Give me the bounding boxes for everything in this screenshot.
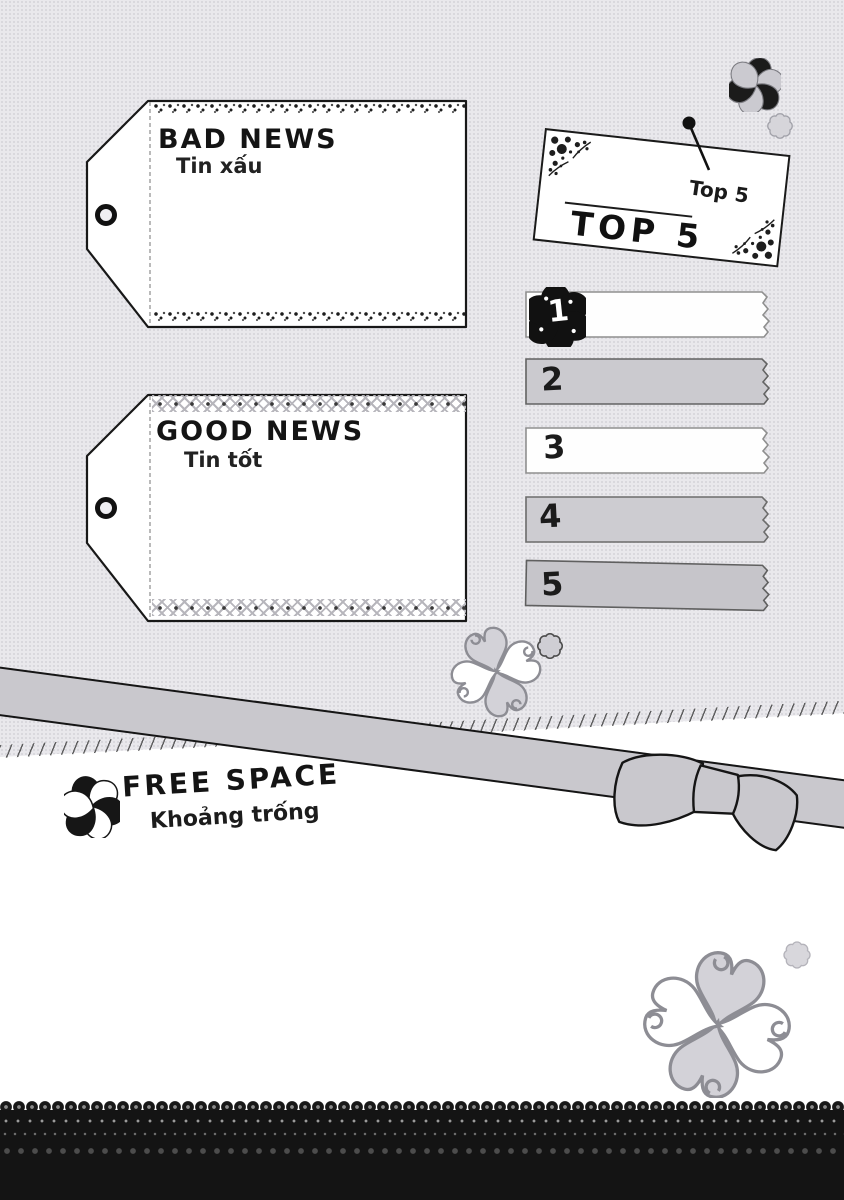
push-pin-icon	[680, 112, 724, 176]
planner-page: BAD NEWS Tin xấu GOOD NEWS Tin tốt Top 5…	[0, 0, 844, 1200]
good-news-subtitle: Tin tốt	[184, 448, 262, 472]
floral-border-top	[153, 102, 465, 115]
clover-icon	[729, 58, 781, 112]
top5-handwritten-note: Top 5	[688, 175, 751, 207]
corner-ornament-icon	[724, 207, 781, 264]
lace-border-top	[152, 395, 466, 412]
ribbon-bow-icon	[604, 736, 814, 861]
rank-number-2: 2	[540, 362, 564, 395]
tag-hole	[98, 500, 115, 517]
rank-number-3: 3	[542, 430, 566, 463]
heart-clover-icon	[642, 948, 792, 1098]
free-space-title: FREE SPACE	[121, 757, 341, 803]
tag-hole	[98, 207, 115, 224]
rank-number-5: 5	[540, 567, 564, 600]
heart-clover-icon	[450, 626, 542, 718]
free-space-subtitle: Khoảng trống	[149, 799, 320, 834]
free-space-clover-icon	[64, 776, 120, 838]
lace-trim-border	[0, 1101, 844, 1200]
rank-strip-4	[525, 496, 773, 543]
lace-border-bottom	[152, 599, 466, 616]
floral-border-bottom	[153, 310, 465, 323]
corner-ornament-icon	[542, 131, 599, 188]
rank-number-1: 1	[546, 296, 570, 328]
scalloped-flower-icon	[764, 110, 796, 142]
good-news-title: GOOD NEWS	[156, 416, 364, 447]
bad-news-subtitle: Tin xấu	[176, 154, 262, 178]
lace-band	[0, 1110, 844, 1200]
bad-news-title: BAD NEWS	[158, 124, 338, 155]
rank-number-4: 4	[538, 499, 562, 532]
